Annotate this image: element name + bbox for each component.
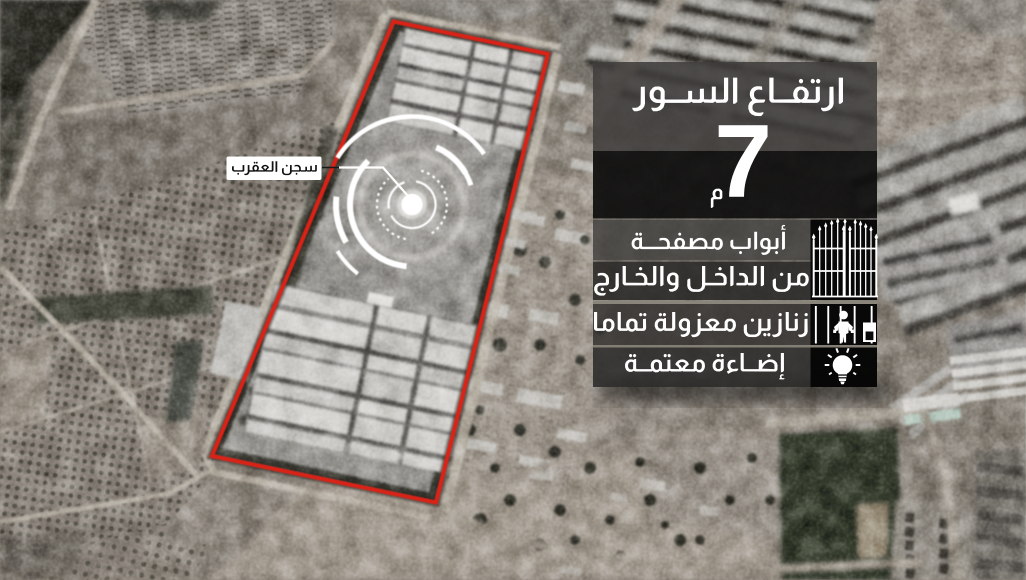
svg-text:7: 7 [714,104,772,220]
